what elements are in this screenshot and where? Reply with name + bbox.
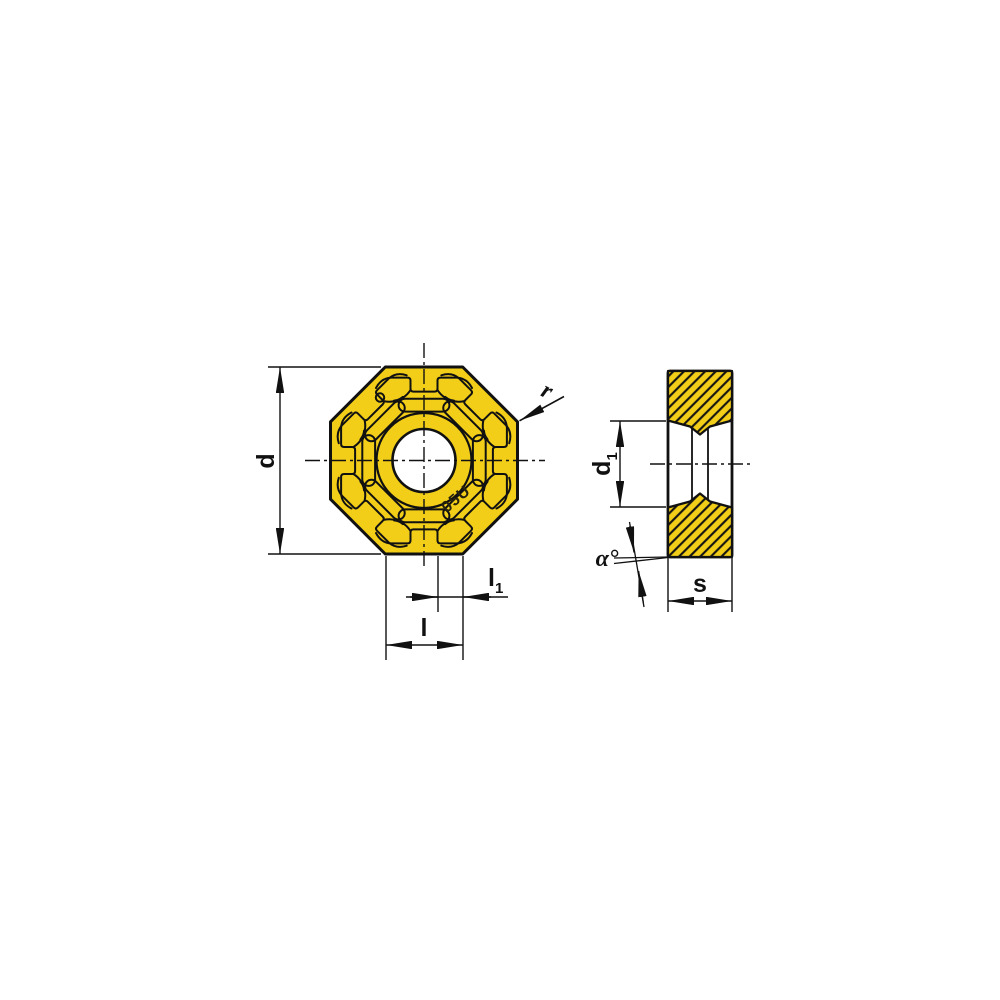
technical-drawing: 05U d r l1 l [0, 0, 1000, 1000]
label-d: d [252, 453, 280, 468]
side-view-section [650, 371, 752, 557]
dimension-l [386, 556, 463, 660]
alpha-arrow-lower [639, 571, 644, 603]
top-view-octagonal-insert: 05U [305, 343, 545, 568]
alpha-arrow-upper [630, 526, 634, 553]
dimension-alpha [614, 522, 668, 607]
label-l: l [421, 614, 428, 642]
label-d1: d1 [588, 452, 621, 476]
label-l1: l1 [488, 564, 503, 597]
drawing-page: 05U d r l1 l [0, 0, 1000, 1000]
label-s: s [693, 570, 707, 598]
label-alpha: α° [596, 546, 619, 572]
